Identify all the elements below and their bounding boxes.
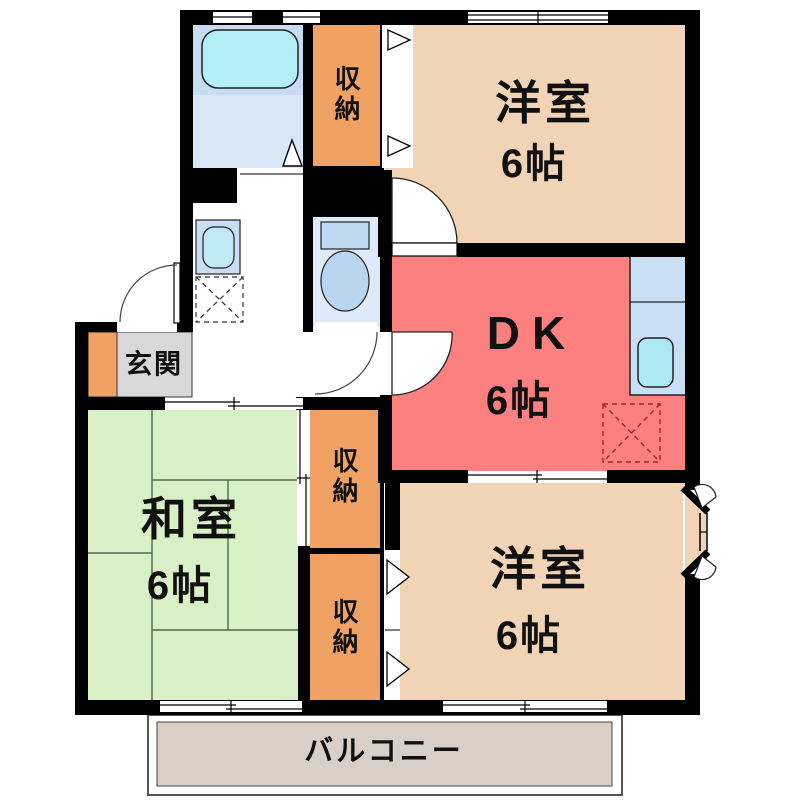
dk-size: 6帖 bbox=[486, 381, 552, 421]
washbasin bbox=[196, 220, 240, 274]
entrance-label: 玄関 bbox=[125, 352, 183, 379]
closet-middle-label: 収納 bbox=[331, 447, 357, 507]
closet-bottom-label: 収納 bbox=[331, 598, 357, 658]
japanese-room-floor bbox=[88, 410, 300, 702]
western-room-bottom-size: 6帖 bbox=[496, 616, 562, 656]
japanese-room-label: 和室 bbox=[141, 496, 241, 542]
western-room-top-label: 洋室 bbox=[495, 80, 595, 126]
floor-plan: 洋室 6帖 DK 6帖 洋室 6帖 和室 6帖 玄関 バルコニー 収納 収納 収… bbox=[0, 0, 800, 800]
closet-top-doors bbox=[382, 25, 413, 168]
dk-label: DK bbox=[487, 310, 577, 356]
entrance-cabinet bbox=[88, 332, 117, 397]
western-room-bottom-label: 洋室 bbox=[490, 546, 590, 592]
closet-top-label: 収納 bbox=[333, 65, 359, 125]
balcony-label: バルコニー bbox=[304, 738, 463, 767]
japanese-room-size: 6帖 bbox=[147, 566, 213, 606]
western-room-top-size: 6帖 bbox=[501, 144, 567, 184]
hallway-floor bbox=[192, 332, 382, 397]
toilet bbox=[321, 222, 369, 311]
floor-plan-drawing bbox=[0, 0, 800, 800]
bathtub bbox=[202, 30, 298, 88]
